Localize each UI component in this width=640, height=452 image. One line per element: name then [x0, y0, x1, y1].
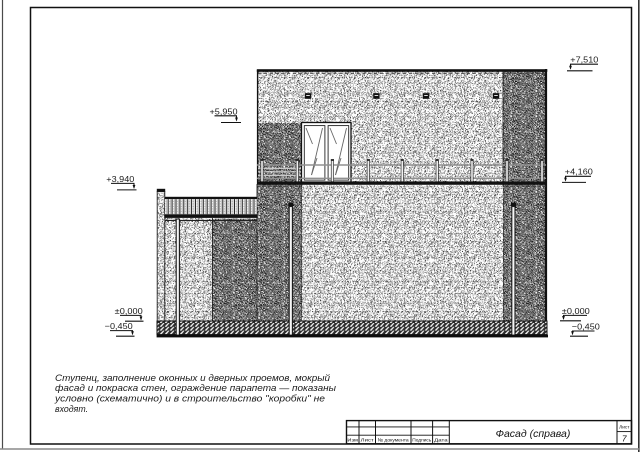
svg-text:−0,450: −0,450	[572, 321, 600, 331]
svg-text:№ документа: № документа	[378, 437, 409, 443]
svg-text:+4,160: +4,160	[565, 167, 593, 177]
svg-text:фасад и покраска стен, огражде: фасад и покраска стен, ограждение парапе…	[55, 383, 337, 393]
svg-text:+5,950: +5,950	[210, 106, 238, 116]
svg-text:Фасад (справа): Фасад (справа)	[496, 428, 571, 440]
svg-text:7: 7	[622, 434, 627, 444]
svg-text:+7,510: +7,510	[570, 54, 598, 64]
svg-text:+3,940: +3,940	[106, 174, 134, 184]
svg-text:условно (схематично) и в строи: условно (схематично) и в строительство "…	[54, 394, 325, 404]
svg-text:Дата: Дата	[434, 437, 448, 443]
svg-text:Подпись: Подпись	[412, 437, 432, 443]
svg-text:−0,450: −0,450	[105, 321, 133, 331]
svg-text:Лист: Лист	[361, 437, 375, 443]
svg-text:Лист: Лист	[619, 425, 630, 431]
svg-text:±0,000: ±0,000	[115, 306, 143, 316]
svg-text:Изм: Изм	[347, 437, 358, 443]
svg-text:входят.: входят.	[55, 404, 88, 414]
svg-text:±0,000: ±0,000	[562, 306, 590, 316]
svg-text:Ступенц, заполнение оконных и: Ступенц, заполнение оконных и дверных пр…	[55, 373, 330, 383]
